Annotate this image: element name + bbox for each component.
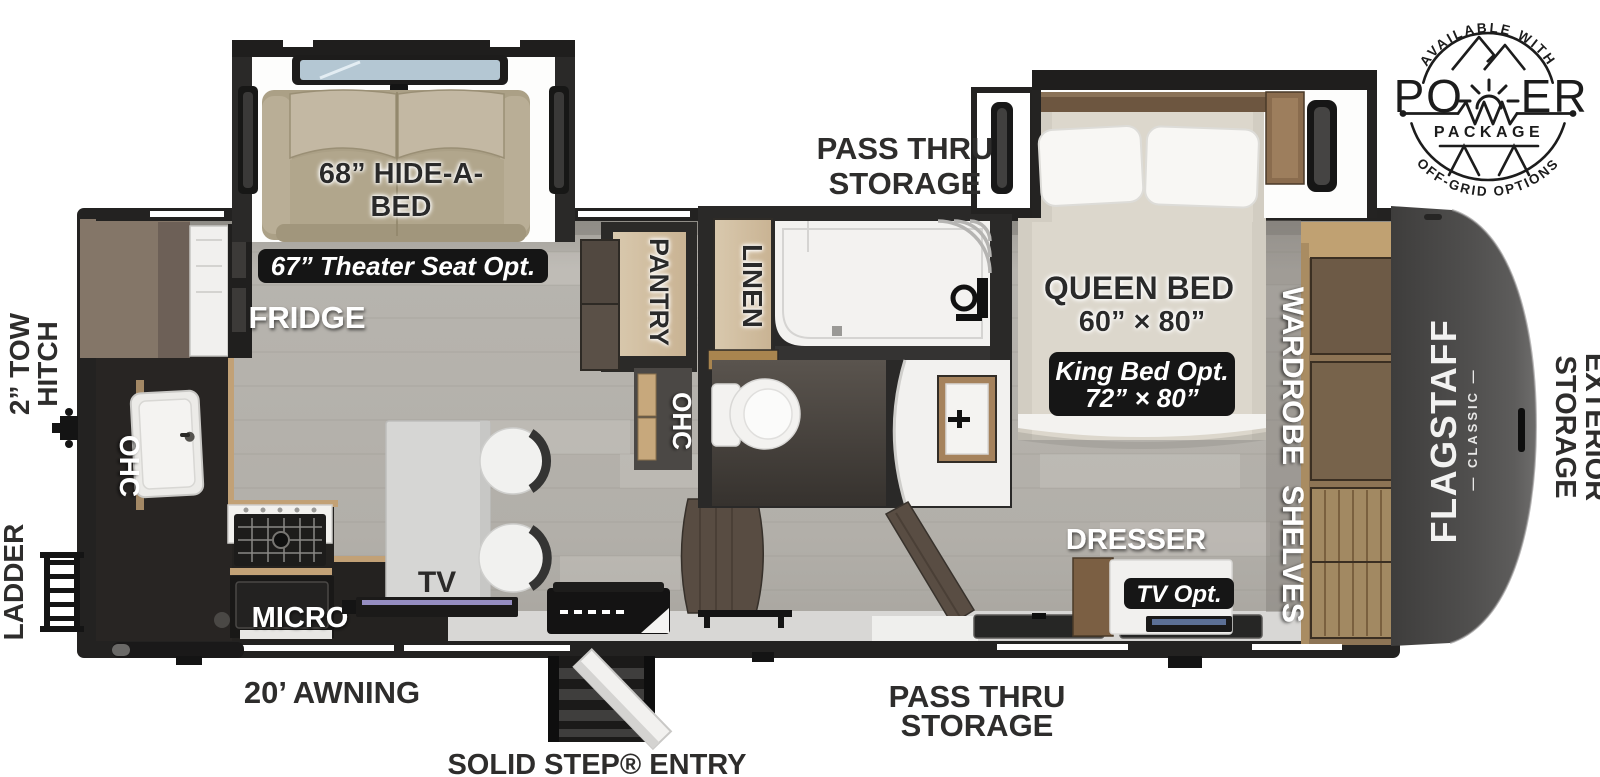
svg-text:STORAGE: STORAGE [1549,356,1581,499]
svg-text:MICRO: MICRO [252,602,349,634]
svg-text:WARDROBE: WARDROBE [1276,287,1309,465]
svg-text:68” HIDE-A-: 68” HIDE-A- [319,158,483,190]
svg-text:HITCH: HITCH [32,321,63,407]
svg-text:FLAGSTAFF: FLAGSTAFF [1423,319,1464,544]
svg-text:STORAGE: STORAGE [829,166,982,201]
svg-text:QUEEN BED: QUEEN BED [1044,270,1234,306]
svg-text:LINEN: LINEN [737,244,768,328]
svg-text:PASS THRU: PASS THRU [817,131,994,166]
svg-text:FRIDGE: FRIDGE [248,300,365,335]
svg-text:PANTRY: PANTRY [644,238,674,346]
svg-text:STORAGE: STORAGE [901,708,1054,743]
svg-text:King Bed Opt.: King Bed Opt. [1055,356,1228,386]
svg-text:EXTERIOR: EXTERIOR [1579,353,1600,501]
svg-text:TV Opt.: TV Opt. [1136,581,1221,608]
svg-text:— CLASSIC —: — CLASSIC — [1465,367,1480,490]
svg-text:DRESSER: DRESSER [1066,524,1206,556]
svg-text:72” × 80”: 72” × 80” [1085,383,1198,413]
svg-text:67” Theater Seat Opt.: 67” Theater Seat Opt. [271,251,535,281]
svg-text:TV: TV [418,566,456,599]
svg-text:OHC: OHC [667,392,697,450]
svg-text:60” × 80”: 60” × 80” [1079,306,1206,338]
svg-text:LADDER: LADDER [0,524,29,641]
svg-text:PACKAGE: PACKAGE [1434,124,1544,141]
svg-text:SOLID STEP® ENTRY: SOLID STEP® ENTRY [447,749,746,777]
svg-text:SHELVES: SHELVES [1276,485,1309,623]
svg-text:OHC: OHC [114,435,145,497]
svg-text:BED: BED [370,191,431,223]
svg-text:20’ AWNING: 20’ AWNING [244,675,420,710]
svg-text:2” TOW: 2” TOW [4,312,35,415]
